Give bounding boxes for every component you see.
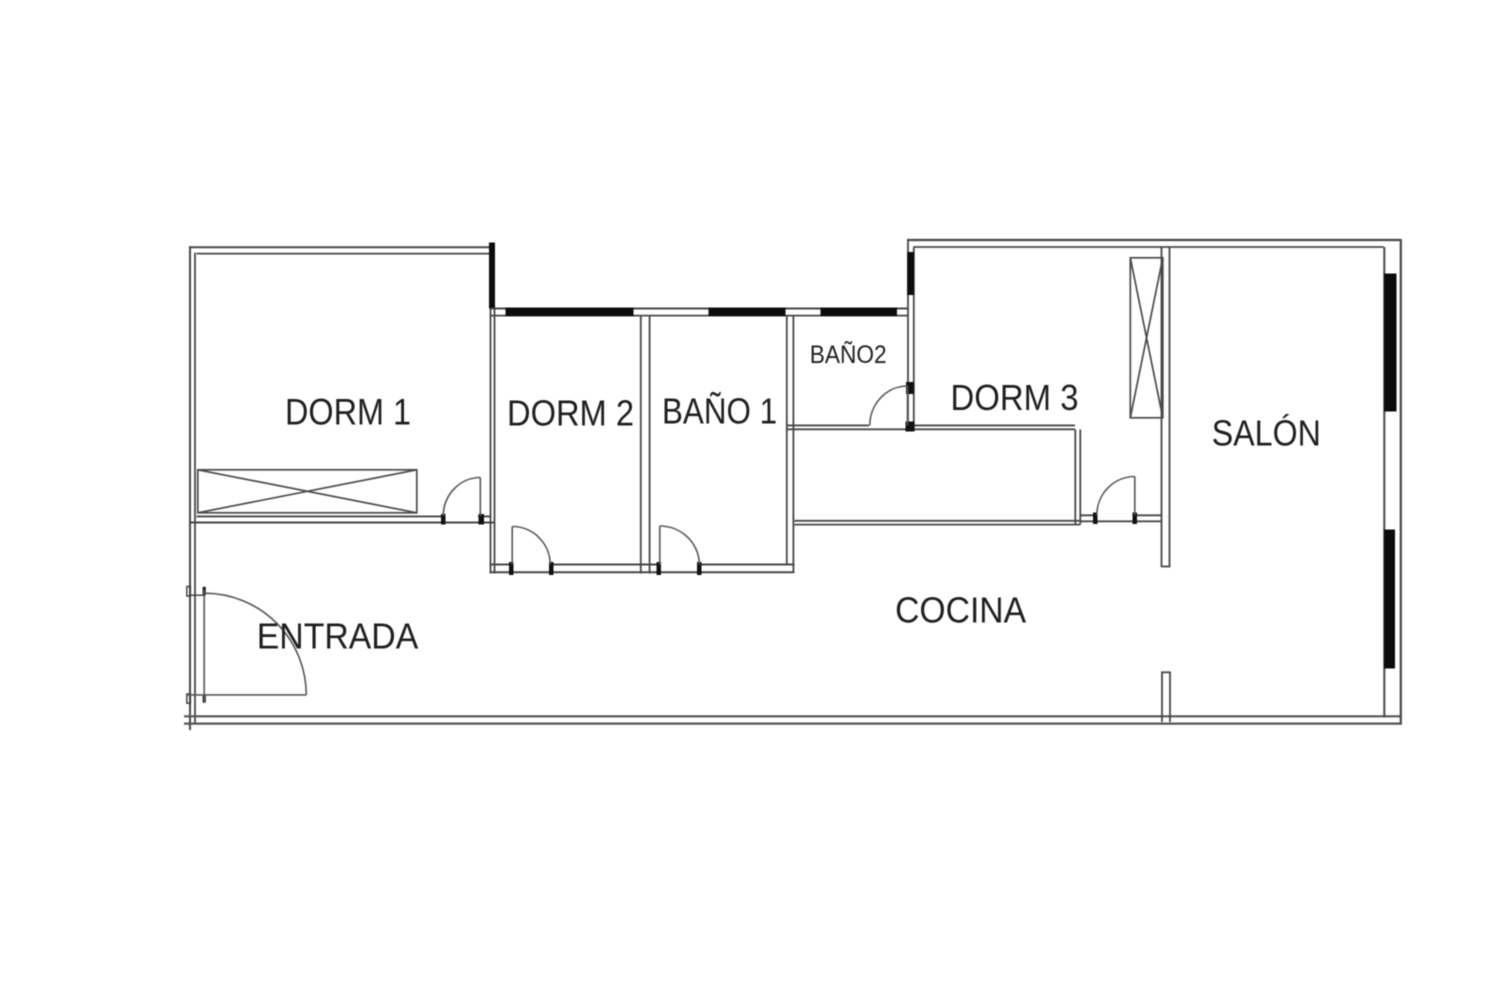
svg-text:DORM 1: DORM 1 [285,392,411,433]
svg-text:BAÑO 1: BAÑO 1 [662,390,777,431]
svg-text:BAÑO2: BAÑO2 [810,340,887,369]
svg-text:ENTRADA: ENTRADA [257,616,419,657]
svg-text:DORM 3: DORM 3 [951,377,1079,418]
svg-text:DORM 2: DORM 2 [507,393,634,434]
svg-text:COCINA: COCINA [895,590,1026,631]
svg-text:SALÓN: SALÓN [1212,413,1321,454]
